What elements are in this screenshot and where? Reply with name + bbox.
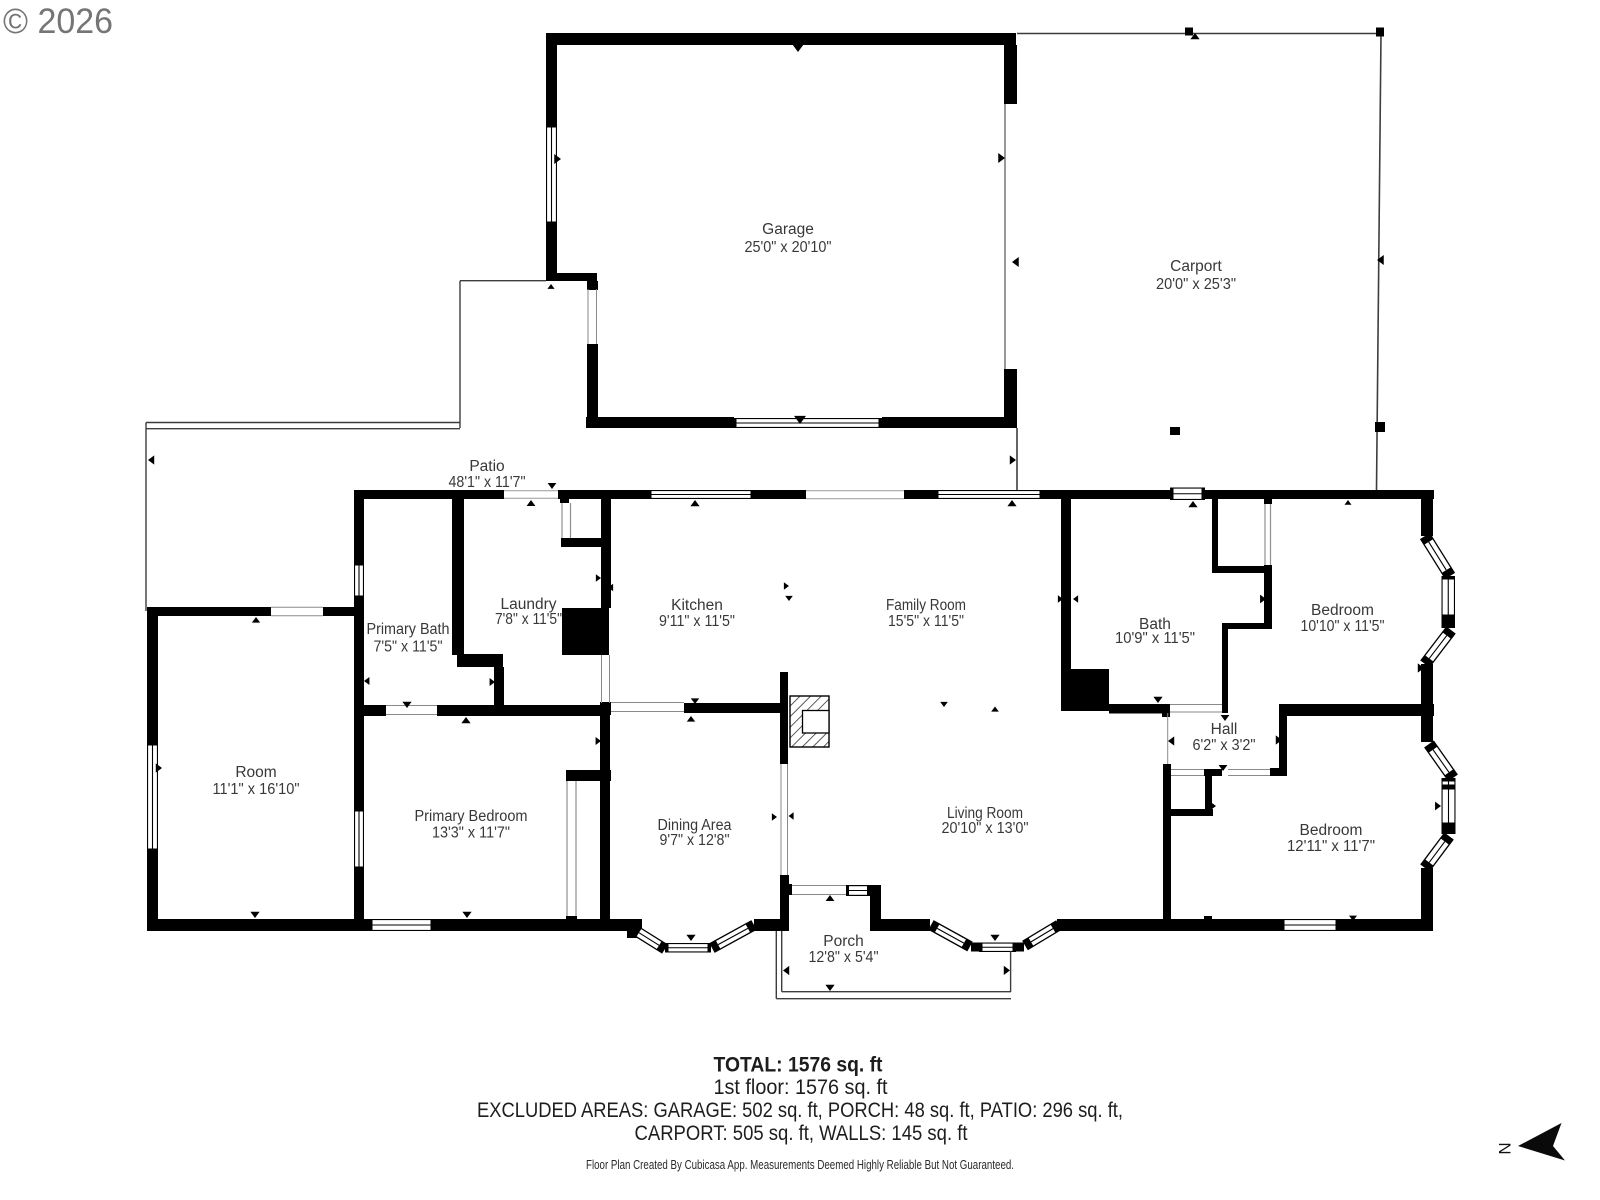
svg-text:48'1" x 11'7": 48'1" x 11'7" bbox=[449, 474, 526, 491]
svg-text:20'0" x 25'3": 20'0" x 25'3" bbox=[1156, 276, 1236, 293]
svg-text:TOTAL: 1576 sq. ft: TOTAL: 1576 sq. ft bbox=[714, 1054, 883, 1077]
svg-text:1st floor: 1576 sq. ft: 1st floor: 1576 sq. ft bbox=[714, 1076, 888, 1099]
svg-text:Room: Room bbox=[235, 764, 276, 781]
svg-text:6'2" x 3'2": 6'2" x 3'2" bbox=[1193, 737, 1256, 754]
svg-text:9'11" x 11'5": 9'11" x 11'5" bbox=[659, 613, 735, 630]
svg-text:20'10" x 13'0": 20'10" x 13'0" bbox=[942, 820, 1029, 837]
svg-text:EXCLUDED AREAS: GARAGE: 502 sq: EXCLUDED AREAS: GARAGE: 502 sq. ft, PORC… bbox=[477, 1099, 1123, 1122]
svg-text:Bedroom: Bedroom bbox=[1311, 602, 1374, 619]
svg-text:11'1" x 16'10": 11'1" x 16'10" bbox=[213, 781, 300, 798]
svg-text:25'0" x 20'10": 25'0" x 20'10" bbox=[745, 239, 832, 256]
svg-text:Porch: Porch bbox=[823, 933, 864, 950]
svg-text:12'11" x 11'7": 12'11" x 11'7" bbox=[1287, 838, 1375, 855]
svg-text:Primary Bath: Primary Bath bbox=[367, 621, 450, 638]
svg-text:Bedroom: Bedroom bbox=[1300, 822, 1363, 839]
svg-text:Kitchen: Kitchen bbox=[671, 597, 723, 614]
svg-text:13'3" x 11'7": 13'3" x 11'7" bbox=[432, 825, 510, 842]
svg-text:9'7" x 12'8": 9'7" x 12'8" bbox=[660, 832, 730, 849]
svg-text:Family Room: Family Room bbox=[886, 597, 966, 614]
svg-text:Hall: Hall bbox=[1211, 721, 1238, 738]
svg-text:Patio: Patio bbox=[469, 458, 504, 475]
svg-text:7'5" x 11'5": 7'5" x 11'5" bbox=[374, 639, 443, 656]
svg-text:CARPORT: 505 sq. ft, WALLS: 14: CARPORT: 505 sq. ft, WALLS: 145 sq. ft bbox=[635, 1122, 968, 1145]
svg-text:15'5" x 11'5": 15'5" x 11'5" bbox=[888, 613, 964, 630]
svg-text:10'10" x 11'5": 10'10" x 11'5" bbox=[1301, 618, 1385, 635]
svg-text:12'8" x 5'4": 12'8" x 5'4" bbox=[809, 949, 879, 966]
svg-text:10'9" x 11'5": 10'9" x 11'5" bbox=[1115, 630, 1195, 647]
svg-text:7'8" x 11'5": 7'8" x 11'5" bbox=[495, 611, 562, 628]
svg-text:Garage: Garage bbox=[762, 221, 814, 238]
svg-text:Floor Plan Created By Cubicasa: Floor Plan Created By Cubicasa App. Meas… bbox=[586, 1158, 1014, 1172]
svg-text:Primary Bedroom: Primary Bedroom bbox=[415, 808, 528, 825]
svg-text:Carport: Carport bbox=[1170, 258, 1222, 275]
svg-text:N: N bbox=[1496, 1142, 1515, 1154]
svg-text:© 2026: © 2026 bbox=[3, 2, 113, 41]
